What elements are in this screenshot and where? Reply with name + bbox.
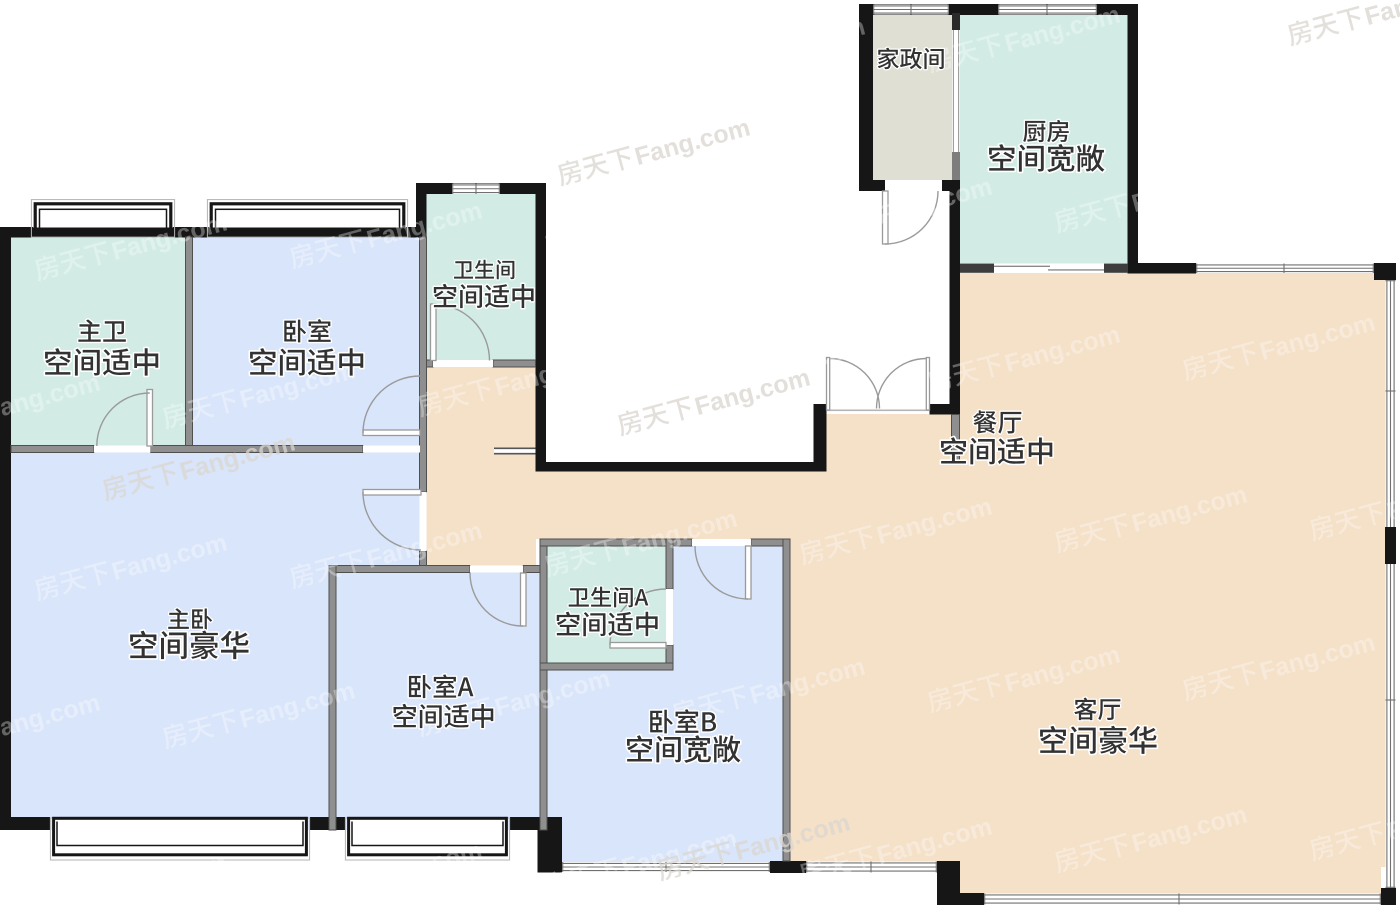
svg-text:Fang.com: Fang.com — [1129, 160, 1250, 218]
svg-text:Fang.com: Fang.com — [632, 113, 753, 171]
svg-text:Fang.com: Fang.com — [492, 24, 613, 82]
svg-text:Fang.com: Fang.com — [1257, 0, 1378, 46]
svg-text:Fang.com: Fang.com — [1362, 0, 1400, 31]
svg-text:Fang.com: Fang.com — [619, 184, 740, 242]
svg-text:Fang.com: Fang.com — [1384, 148, 1400, 206]
svg-text:Fang.com: Fang.com — [237, 36, 358, 94]
svg-text:Fang.com: Fang.com — [747, 12, 868, 70]
svg-text:Fang.com: Fang.com — [0, 48, 103, 106]
svg-text:Fang.com: Fang.com — [109, 848, 230, 906]
